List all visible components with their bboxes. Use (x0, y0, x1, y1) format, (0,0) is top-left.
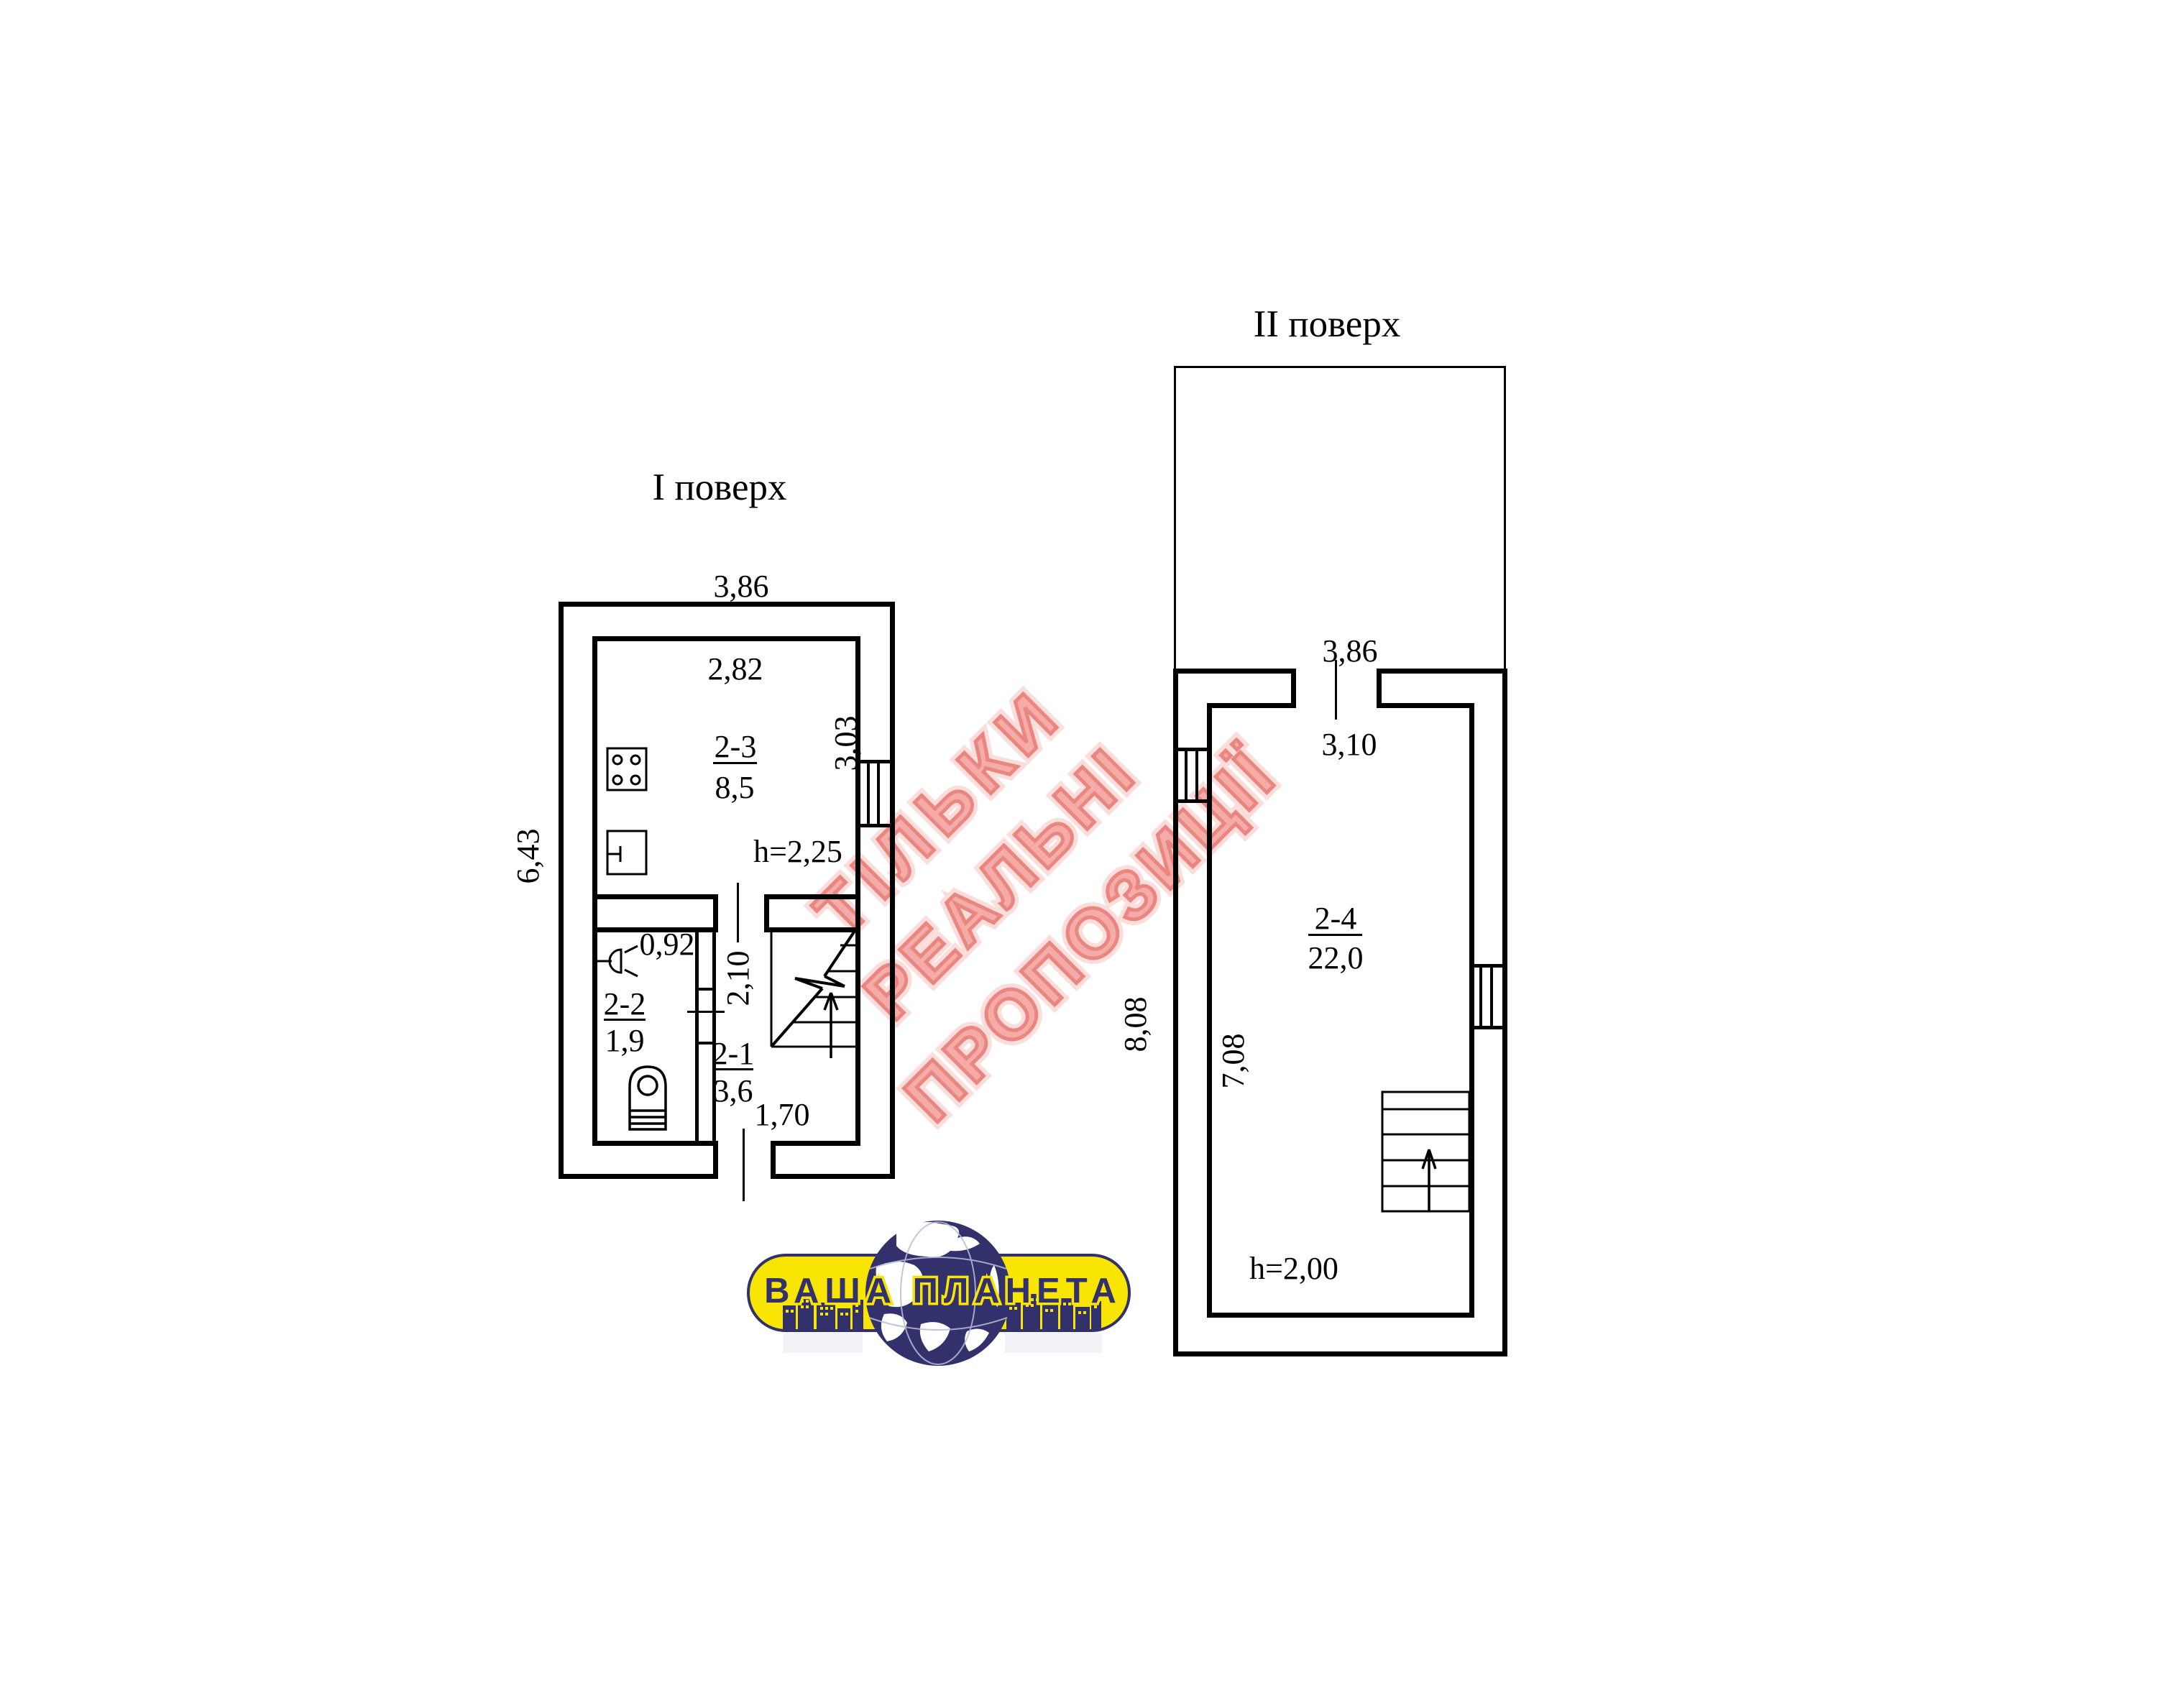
svg-text:3,6: 3,6 (714, 1073, 753, 1108)
svg-text:3,86: 3,86 (1323, 633, 1378, 669)
svg-text:2-3: 2-3 (715, 729, 757, 764)
svg-text:1,70: 1,70 (755, 1097, 810, 1132)
svg-text:3,86: 3,86 (714, 569, 769, 604)
svg-text:3,10: 3,10 (1322, 727, 1377, 762)
svg-text:ВАША ПЛАНЕТА: ВАША ПЛАНЕТА (764, 1272, 1122, 1310)
svg-text:7,08: 7,08 (1216, 1034, 1251, 1089)
svg-text:2-1: 2-1 (712, 1036, 755, 1071)
svg-text:2-2: 2-2 (604, 986, 646, 1021)
svg-text:2,10: 2,10 (720, 951, 755, 1006)
svg-text:ІІ поверх: ІІ поверх (1254, 303, 1401, 345)
svg-text:8,08: 8,08 (1118, 997, 1153, 1052)
svg-text:8,5: 8,5 (715, 770, 755, 805)
svg-text:h=2,25: h=2,25 (753, 834, 842, 869)
svg-text:6,43: 6,43 (510, 829, 546, 884)
svg-text:3,03: 3,03 (828, 716, 863, 771)
svg-text:0,92: 0,92 (640, 927, 695, 962)
svg-text:22,0: 22,0 (1308, 940, 1364, 975)
svg-text:2,82: 2,82 (708, 651, 763, 687)
svg-text:1,9: 1,9 (605, 1023, 645, 1058)
svg-text:h=2,00: h=2,00 (1249, 1251, 1338, 1286)
svg-text:І поверх: І поверх (652, 467, 786, 508)
svg-text:2-4: 2-4 (1315, 901, 1357, 936)
